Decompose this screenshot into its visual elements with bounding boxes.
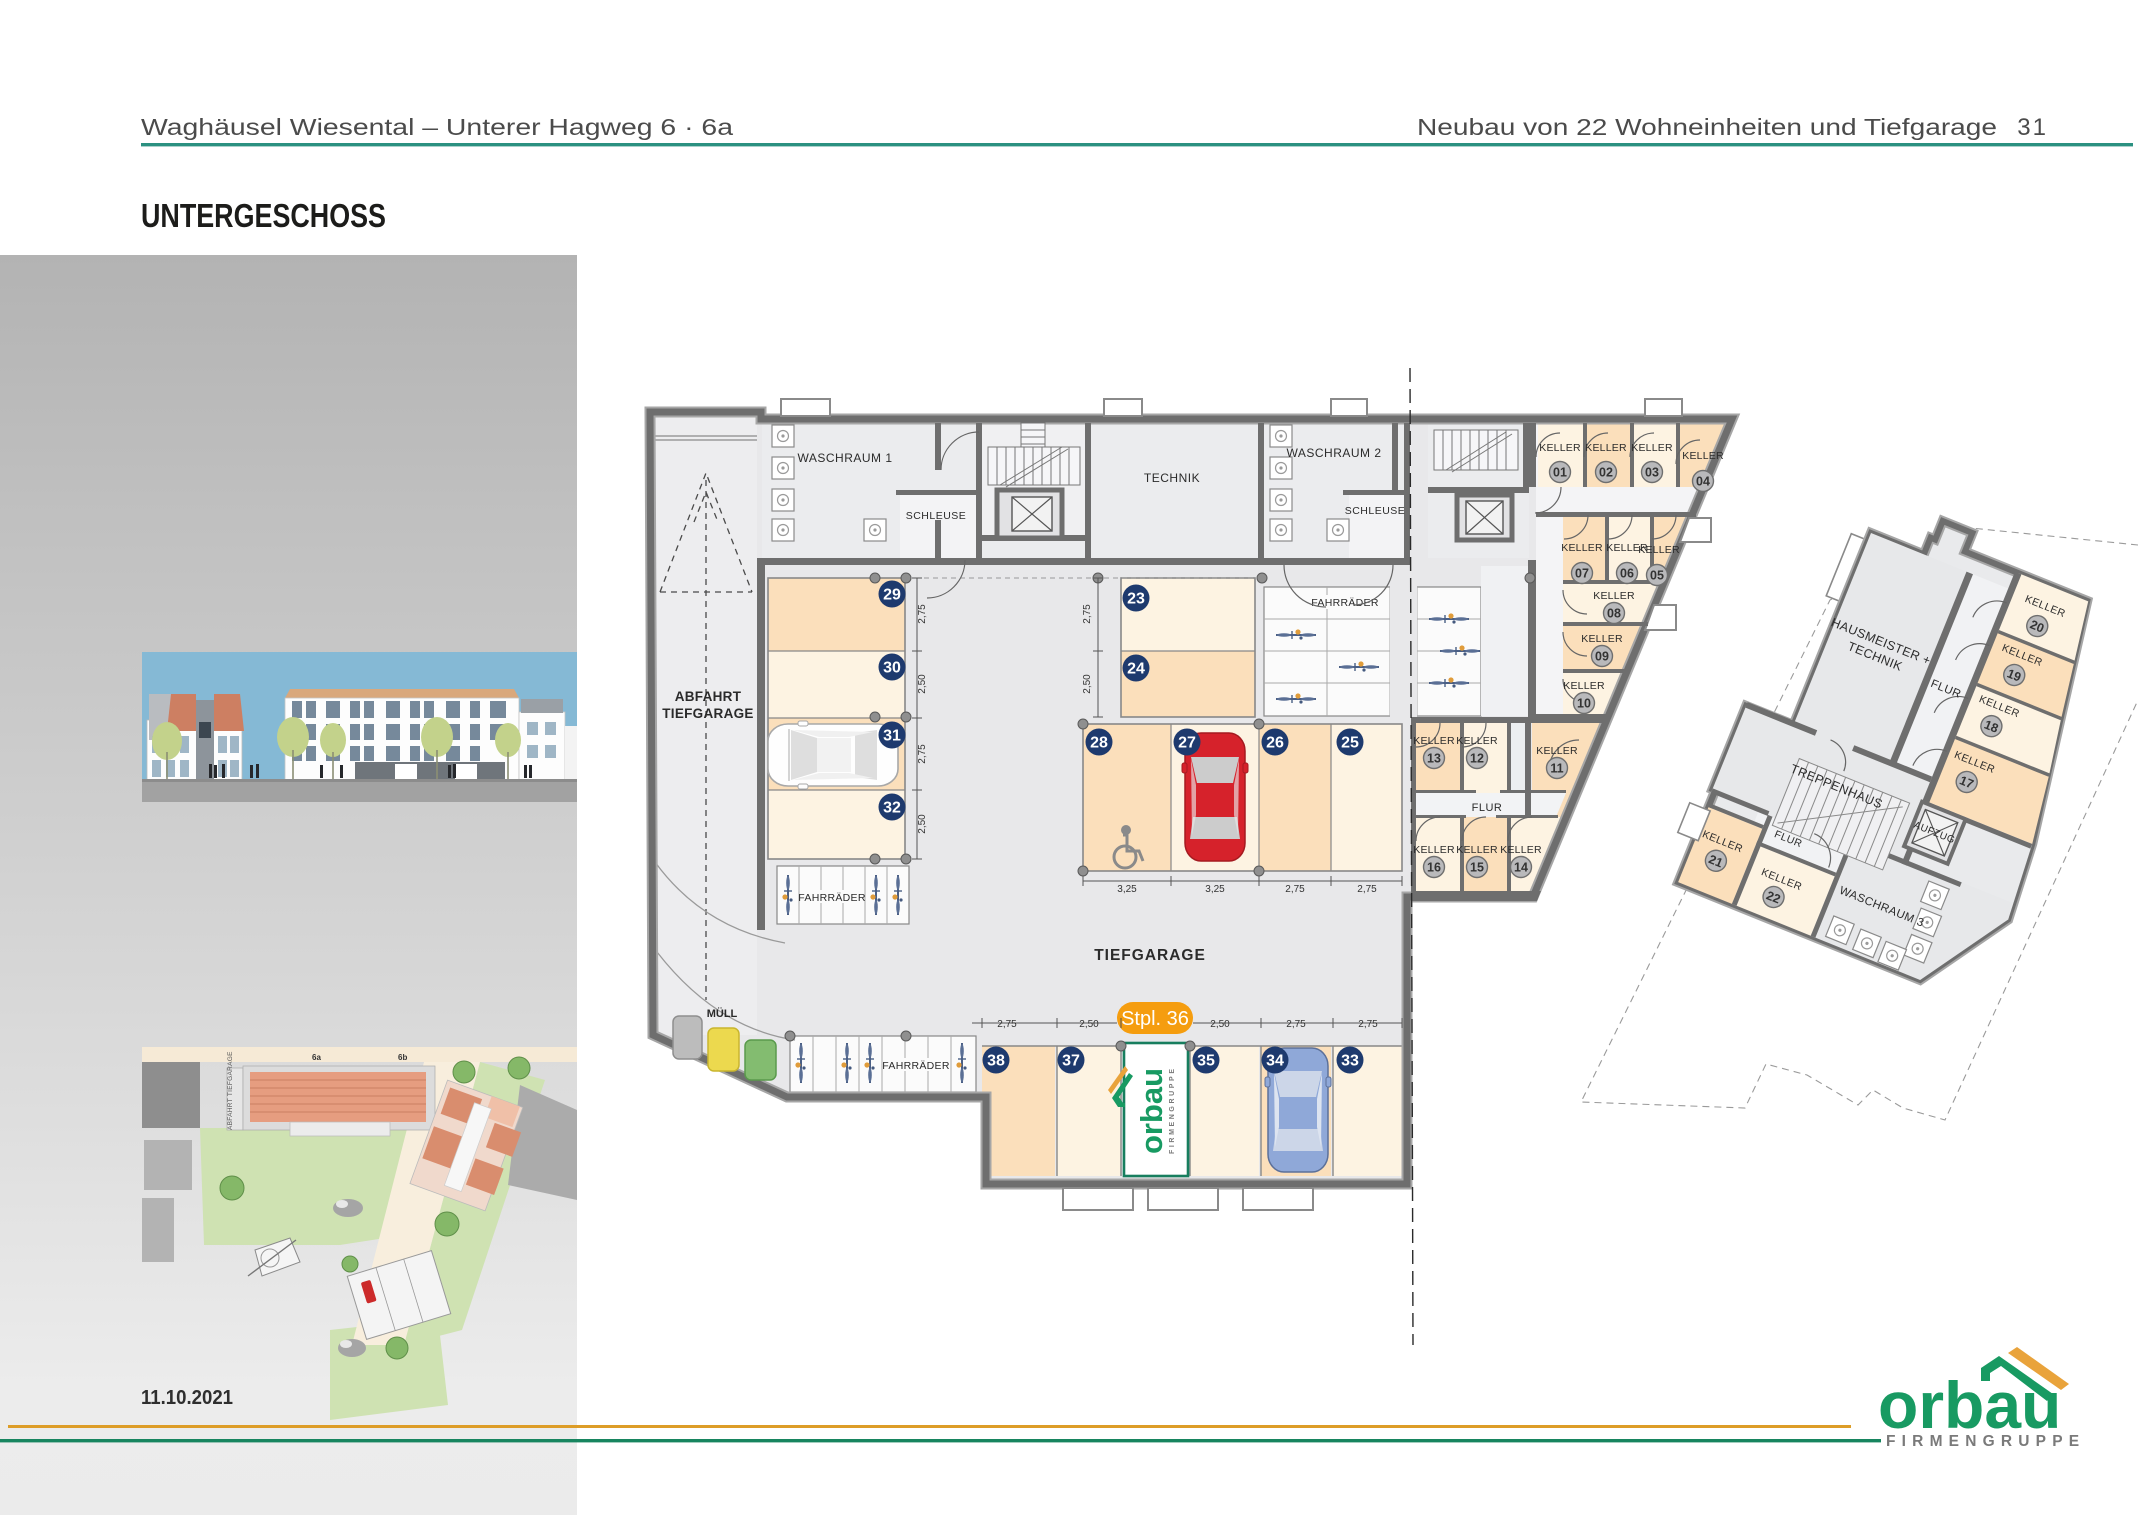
svg-text:13: 13 <box>1427 752 1441 766</box>
svg-text:SCHLEUSE: SCHLEUSE <box>906 510 967 522</box>
svg-text:Waghäusel Wiesental – Unterer: Waghäusel Wiesental – Unterer Hagweg 6 ·… <box>141 114 733 140</box>
svg-text:FLUR: FLUR <box>1472 802 1503 814</box>
svg-text:15: 15 <box>1470 861 1484 875</box>
svg-text:6b: 6b <box>398 1053 407 1062</box>
svg-text:34: 34 <box>1266 1053 1284 1070</box>
svg-text:KELLER: KELLER <box>1682 450 1724 462</box>
svg-text:KELLER: KELLER <box>1631 442 1673 454</box>
svg-text:2,75: 2,75 <box>1358 1019 1378 1030</box>
svg-text:07: 07 <box>1575 567 1589 581</box>
svg-text:2,50: 2,50 <box>1082 674 1093 694</box>
svg-text:KELLER: KELLER <box>1539 442 1581 454</box>
svg-text:MÜLL: MÜLL <box>707 1007 738 1020</box>
svg-text:2,50: 2,50 <box>917 814 928 834</box>
svg-text:09: 09 <box>1595 650 1609 664</box>
svg-text:08: 08 <box>1607 607 1621 621</box>
svg-text:KELLER: KELLER <box>1561 542 1603 554</box>
svg-text:KELLER: KELLER <box>1413 735 1455 747</box>
svg-text:2,75: 2,75 <box>917 604 928 624</box>
svg-text:KELLER: KELLER <box>1413 844 1455 856</box>
svg-text:WASCHRAUM 2: WASCHRAUM 2 <box>1286 446 1381 460</box>
svg-text:11.10.2021: 11.10.2021 <box>141 1387 233 1409</box>
svg-text:ABFAHRT: ABFAHRT <box>675 689 742 704</box>
svg-text:KELLER: KELLER <box>1593 590 1635 602</box>
svg-text:14: 14 <box>1514 861 1528 875</box>
svg-text:23: 23 <box>1127 591 1145 608</box>
svg-text:UNTERGESCHOSS: UNTERGESCHOSS <box>141 197 386 234</box>
svg-text:KELLER: KELLER <box>1638 544 1680 556</box>
svg-text:2,75: 2,75 <box>917 744 928 764</box>
svg-text:KELLER: KELLER <box>1456 844 1498 856</box>
svg-text:Stpl. 36: Stpl. 36 <box>1121 1008 1189 1030</box>
svg-text:2,50: 2,50 <box>1079 1019 1099 1030</box>
svg-text:ABFAHRT TIEFGARAGE: ABFAHRT TIEFGARAGE <box>227 1051 234 1130</box>
svg-text:KELLER: KELLER <box>1585 442 1627 454</box>
svg-text:KELLER: KELLER <box>1581 633 1623 645</box>
svg-text:TECHNIK: TECHNIK <box>1144 471 1200 485</box>
svg-text:FIRMENGRUPPE: FIRMENGRUPPE <box>1169 1066 1176 1154</box>
svg-text:2,75: 2,75 <box>1286 1019 1306 1030</box>
svg-text:25: 25 <box>1341 735 1359 752</box>
svg-text:32: 32 <box>883 800 901 817</box>
svg-text:24: 24 <box>1127 661 1145 678</box>
svg-text:16: 16 <box>1427 861 1441 875</box>
svg-text:2,75: 2,75 <box>1082 604 1093 624</box>
svg-text:WASCHRAUM 1: WASCHRAUM 1 <box>797 451 892 465</box>
svg-text:29: 29 <box>883 587 901 604</box>
svg-text:06: 06 <box>1620 567 1634 581</box>
svg-text:31: 31 <box>883 728 901 745</box>
svg-text:KELLER: KELLER <box>1563 680 1605 692</box>
svg-text:05: 05 <box>1650 569 1664 583</box>
svg-text:orbau: orbau <box>1134 1068 1169 1154</box>
svg-text:38: 38 <box>987 1053 1005 1070</box>
svg-text:3,25: 3,25 <box>1205 884 1225 895</box>
svg-text:orbau: orbau <box>1878 1368 2061 1442</box>
svg-text:FAHRRÄDER: FAHRRÄDER <box>798 892 866 904</box>
svg-text:TIEFGARAGE: TIEFGARAGE <box>1094 947 1206 964</box>
svg-text:26: 26 <box>1266 735 1284 752</box>
svg-text:SCHLEUSE: SCHLEUSE <box>1345 505 1406 517</box>
svg-text:27: 27 <box>1178 735 1196 752</box>
svg-text:03: 03 <box>1645 466 1659 480</box>
svg-text:35: 35 <box>1197 1053 1215 1070</box>
svg-text:2,50: 2,50 <box>1210 1019 1230 1030</box>
svg-text:33: 33 <box>1341 1053 1359 1070</box>
svg-text:Neubau von 22 Wohneinheiten un: Neubau von 22 Wohneinheiten und Tiefgara… <box>1417 114 1997 140</box>
svg-text:2,75: 2,75 <box>1357 884 1377 895</box>
svg-text:12: 12 <box>1470 752 1484 766</box>
svg-text:2,75: 2,75 <box>997 1019 1017 1030</box>
svg-text:KELLER: KELLER <box>1456 735 1498 747</box>
svg-text:2,75: 2,75 <box>1285 884 1305 895</box>
svg-text:6a: 6a <box>312 1053 321 1062</box>
svg-text:FIRMENGRUPPE: FIRMENGRUPPE <box>1886 1433 2085 1450</box>
svg-text:04: 04 <box>1696 475 1710 489</box>
svg-text:11: 11 <box>1550 762 1563 776</box>
svg-text:31: 31 <box>2017 114 2048 141</box>
svg-text:3,25: 3,25 <box>1117 884 1137 895</box>
svg-text:TIEFGARAGE: TIEFGARAGE <box>662 706 754 721</box>
svg-text:FAHRRÄDER: FAHRRÄDER <box>882 1060 950 1072</box>
svg-text:01: 01 <box>1553 466 1567 480</box>
svg-text:37: 37 <box>1062 1053 1080 1070</box>
svg-text:28: 28 <box>1090 735 1108 752</box>
svg-text:30: 30 <box>883 660 901 677</box>
svg-text:10: 10 <box>1577 697 1591 711</box>
svg-text:02: 02 <box>1599 466 1613 480</box>
svg-text:KELLER: KELLER <box>1536 745 1578 757</box>
svg-text:KELLER: KELLER <box>1500 844 1542 856</box>
svg-text:2,50: 2,50 <box>917 674 928 694</box>
